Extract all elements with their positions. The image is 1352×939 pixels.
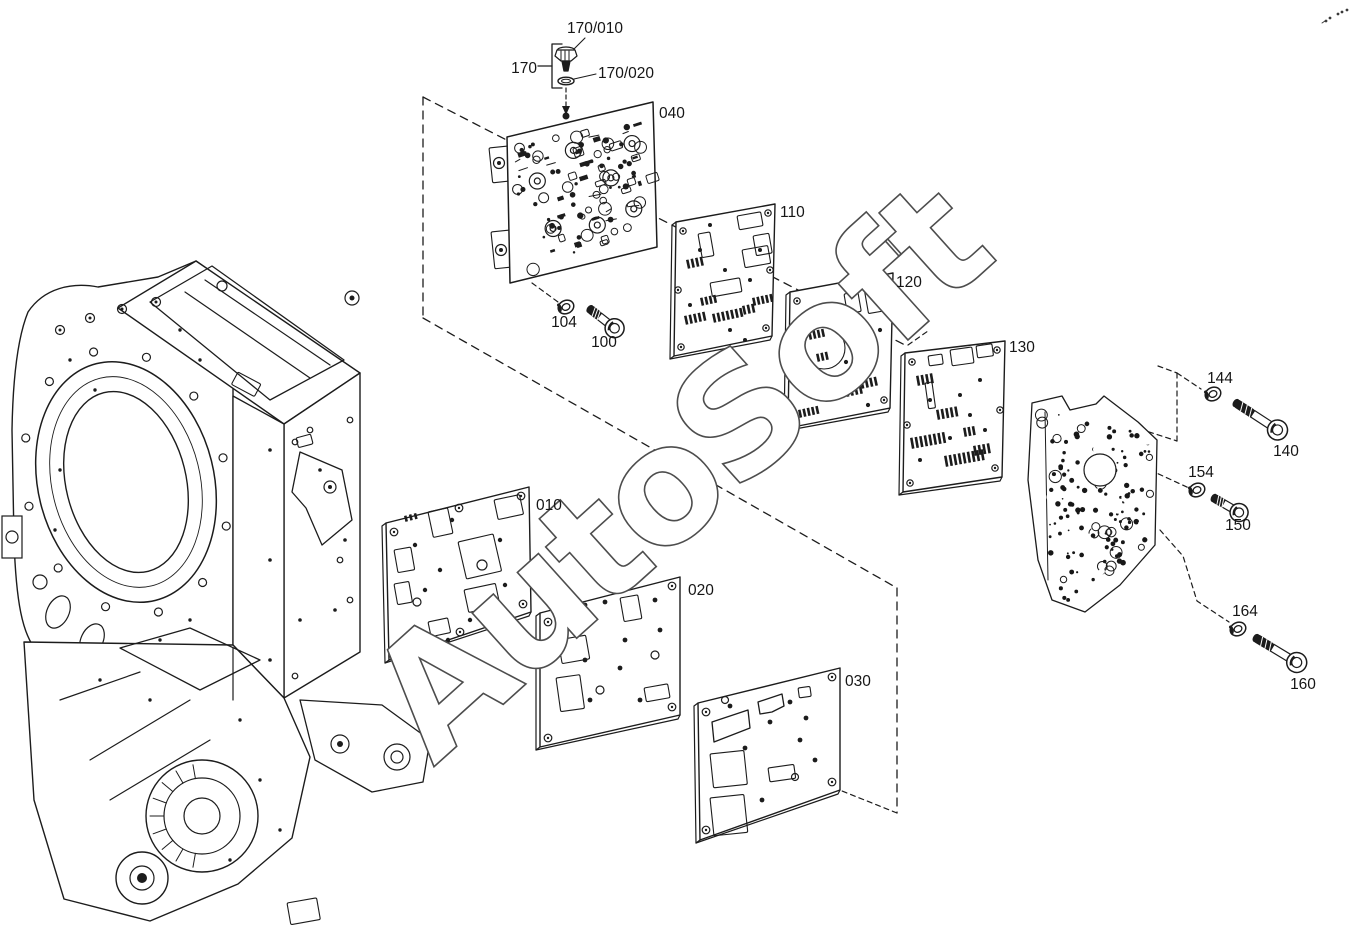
callout-010: 010: [536, 497, 562, 514]
callout-030: 030: [845, 673, 871, 690]
transmission-housing: [2, 261, 430, 925]
callout-104: 104: [551, 314, 577, 331]
callout-140: 140: [1273, 443, 1299, 460]
exploded-parts-diagram: AutoSoft 170/010 170 170/020 040 110 120…: [0, 0, 1352, 939]
callout-144: 144: [1207, 370, 1233, 387]
plug-assembly-170: [538, 38, 596, 115]
callout-160: 160: [1290, 676, 1316, 693]
callout-170-020: 170/020: [598, 65, 654, 82]
callout-154: 154: [1188, 464, 1214, 481]
callout-170-010: 170/010: [567, 20, 623, 37]
callout-120: 120: [896, 274, 922, 291]
callout-170: 170: [511, 60, 537, 77]
callout-100: 100: [591, 334, 617, 351]
valve-body-040: [489, 102, 659, 283]
callout-130: 130: [1009, 339, 1035, 356]
callout-150: 150: [1225, 517, 1251, 534]
corner-mark-icon: [1322, 9, 1348, 23]
callout-164: 164: [1232, 603, 1258, 620]
callout-040: 040: [659, 105, 685, 122]
callout-110: 110: [780, 204, 805, 221]
channel-plate: [1028, 396, 1157, 612]
plate-030: [694, 668, 840, 843]
callout-020: 020: [688, 582, 714, 599]
page: AutoSoft 170/010 170 170/020 040 110 120…: [0, 0, 1352, 939]
